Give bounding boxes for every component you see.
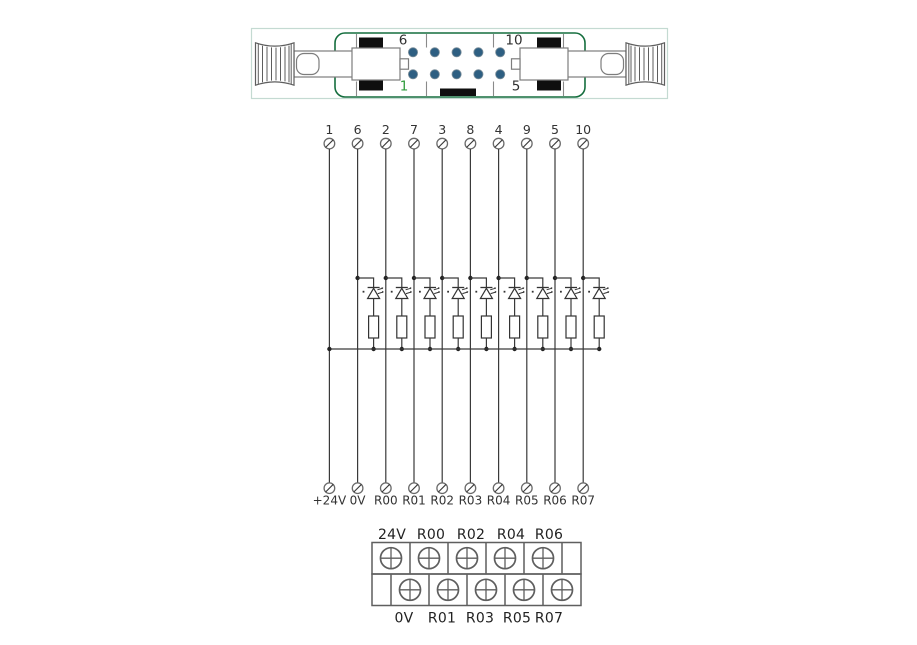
- top-terminal-number: 5: [551, 122, 559, 137]
- block-label: R00: [417, 527, 445, 543]
- led-resistor-branches: [355, 276, 609, 351]
- top-terminal-number: 1: [325, 122, 333, 137]
- terminal-block: 24V R00 R02 R04 R06 0V R01 R03 R05: [372, 527, 581, 627]
- block-label: 24V: [378, 527, 406, 543]
- pin-dot: [430, 48, 439, 57]
- top-terminal-number: 7: [410, 122, 418, 137]
- pin-label-1: 1: [400, 79, 409, 95]
- screw-head-icon: [514, 579, 535, 600]
- pin-label-5: 5: [512, 79, 521, 95]
- led-resistor-branch: [355, 276, 383, 351]
- block-label: R06: [535, 527, 563, 543]
- terminal-block-bottom-labels: 0V R01 R03 R05 R07: [395, 611, 564, 627]
- led-resistor-branch: [581, 276, 609, 351]
- bottom-terminal-label: R02: [430, 494, 454, 508]
- top-terminal-number: 10: [575, 122, 591, 137]
- top-terminal-number: 3: [438, 122, 446, 137]
- pin-dot: [496, 48, 505, 57]
- bottom-terminal-label: R03: [459, 494, 483, 508]
- screw-head-icon: [381, 548, 402, 569]
- pin-dot: [452, 70, 461, 79]
- led-resistor-branch: [440, 276, 468, 351]
- screw-head-icon: [457, 548, 478, 569]
- screw-terminal-icon: [437, 138, 448, 149]
- pin-dot: [430, 70, 439, 79]
- common-bus: [327, 347, 599, 351]
- screw-terminal-icon: [352, 138, 363, 149]
- screw-head-icon: [552, 579, 573, 600]
- screw-terminal-icon: [550, 483, 561, 494]
- bottom-terminal-label: R07: [571, 494, 595, 508]
- wiring-schematic: 6 10 1 5 1 6 2 7 3 8 4 9 5 10: [0, 0, 917, 645]
- screw-terminal-icon: [493, 483, 504, 494]
- screw-terminal-icon: [409, 483, 420, 494]
- schematic-page: 6 10 1 5 1 6 2 7 3 8 4 9 5 10: [0, 0, 917, 645]
- block-label: 0V: [395, 611, 414, 627]
- led-resistor-branch: [384, 276, 412, 351]
- screw-head-icon: [533, 548, 554, 569]
- top-terminal-numbers: 1 6 2 7 3 8 4 9 5 10: [325, 122, 591, 137]
- pin-dot: [408, 70, 417, 79]
- pin-dot: [474, 48, 483, 57]
- pin-dot: [474, 70, 483, 79]
- connector-pins: [408, 48, 504, 79]
- block-label: R01: [428, 611, 456, 627]
- led-resistor-branch: [468, 276, 496, 351]
- pin-dot: [452, 48, 461, 57]
- bottom-terminal-label: R00: [374, 494, 398, 508]
- bottom-terminal-label: R06: [543, 494, 567, 508]
- top-terminal-number: 6: [354, 122, 362, 137]
- block-label: R05: [503, 611, 531, 627]
- top-terminal-number: 2: [382, 122, 390, 137]
- connector-keying-bar: [440, 89, 476, 97]
- bottom-terminal-label: R04: [487, 494, 511, 508]
- circuit-diagram: 1 6 2 7 3 8 4 9 5 10: [313, 122, 610, 508]
- terminal-block-top-labels: 24V R00 R02 R04 R06: [378, 527, 563, 543]
- screw-terminal-icon: [550, 138, 561, 149]
- screw-terminal-icon: [578, 138, 589, 149]
- pin-label-10: 10: [505, 33, 522, 49]
- led-resistor-branch: [525, 276, 553, 351]
- led-resistor-branch: [412, 276, 440, 351]
- screw-terminal-icon: [522, 138, 533, 149]
- screw-terminal-icon: [465, 483, 476, 494]
- screw-head-icon: [400, 579, 421, 600]
- bottom-terminal-label: +24V: [313, 494, 347, 508]
- led-resistor-branch: [553, 276, 581, 351]
- block-screws-top-row: [381, 548, 554, 569]
- screw-terminal-icon: [465, 138, 476, 149]
- screw-head-icon: [438, 579, 459, 600]
- block-label: R04: [497, 527, 525, 543]
- top-terminal-icons: [324, 138, 588, 149]
- led-resistor-branch: [496, 276, 524, 351]
- screw-terminal-icon: [409, 138, 420, 149]
- screw-terminal-icon: [522, 483, 533, 494]
- top-terminal-number: 8: [466, 122, 474, 137]
- top-terminal-number: 9: [523, 122, 531, 137]
- screw-head-icon: [495, 548, 516, 569]
- bottom-terminal-icons: [324, 483, 588, 494]
- bottom-terminal-label: R01: [402, 494, 426, 508]
- bottom-terminal-labels: +24V 0V R00 R01 R02 R03 R04 R05 R06 R07: [313, 494, 595, 508]
- block-label: R07: [535, 611, 563, 627]
- pin-dot: [408, 48, 417, 57]
- block-label: R03: [466, 611, 494, 627]
- top-terminal-number: 4: [495, 122, 503, 137]
- screw-head-icon: [419, 548, 440, 569]
- screw-terminal-icon: [381, 483, 392, 494]
- screw-terminal-icon: [352, 483, 363, 494]
- screw-terminal-icon: [324, 138, 335, 149]
- screw-terminal-icon: [381, 138, 392, 149]
- screw-terminal-icon: [493, 138, 504, 149]
- pin-dot: [496, 70, 505, 79]
- connector-top-view: 6 10 1 5: [252, 29, 668, 99]
- screw-terminal-icon: [578, 483, 589, 494]
- screw-terminal-icon: [437, 483, 448, 494]
- bottom-terminal-label: R05: [515, 494, 539, 508]
- screw-terminal-icon: [324, 483, 335, 494]
- screw-head-icon: [476, 579, 497, 600]
- pin-label-6: 6: [399, 33, 408, 49]
- block-label: R02: [457, 527, 485, 543]
- bottom-terminal-label: 0V: [350, 494, 367, 508]
- block-screws-bottom-row: [400, 579, 573, 600]
